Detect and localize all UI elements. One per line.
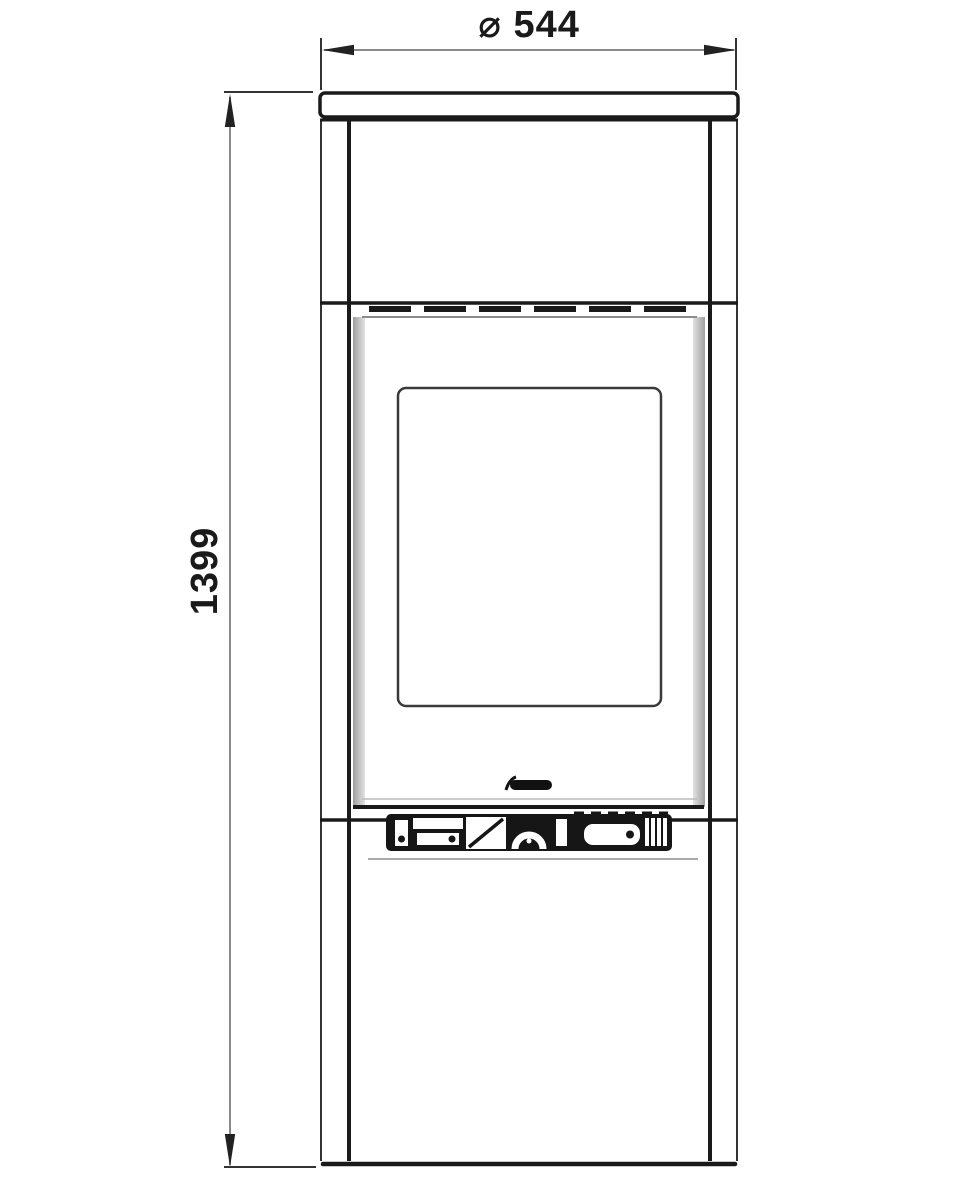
stove-drawing <box>0 0 960 1200</box>
hardware-pin-1 <box>398 836 405 843</box>
brand-logo <box>506 777 552 790</box>
arrow-right-icon <box>704 45 736 55</box>
door-edge-shade-right <box>693 317 705 807</box>
hardware-pin-3 <box>626 831 634 839</box>
door-glass-window <box>398 388 661 706</box>
hardware-slot-4 <box>556 819 567 846</box>
door-section <box>353 309 705 807</box>
door-edge-shade-left <box>353 317 365 807</box>
technical-drawing-page: ⌀ 544 1399 <box>0 0 960 1200</box>
arrow-up-icon <box>225 94 235 127</box>
hardware-hinge-dot <box>527 839 532 844</box>
arrow-left-icon <box>322 45 354 55</box>
top-plate <box>320 93 738 117</box>
arrow-down-icon <box>225 1134 235 1167</box>
brand-logo-mark <box>510 780 552 790</box>
hardware-slot-2 <box>413 818 463 829</box>
hardware-pin-2 <box>449 836 456 843</box>
height-dimension <box>224 92 316 1167</box>
door-latch-hardware <box>368 813 698 859</box>
width-dimension <box>321 38 736 90</box>
